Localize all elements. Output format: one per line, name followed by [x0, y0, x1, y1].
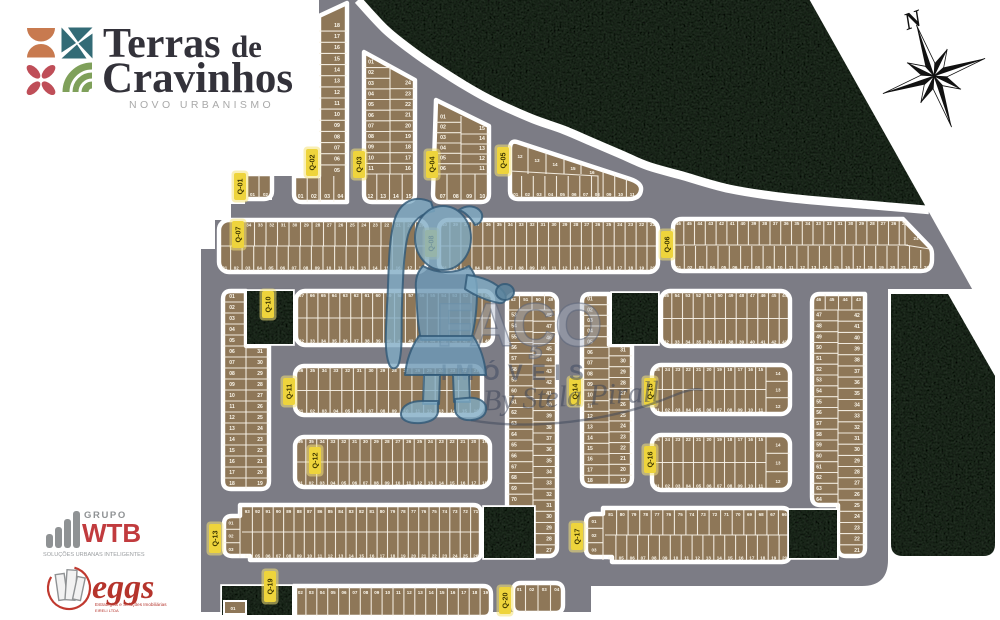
svg-text:28: 28 — [385, 439, 391, 444]
svg-text:33: 33 — [333, 368, 339, 373]
svg-text:61: 61 — [365, 293, 371, 298]
svg-text:66: 66 — [310, 293, 316, 298]
svg-text:26: 26 — [854, 492, 860, 498]
svg-text:76: 76 — [421, 509, 427, 514]
svg-text:64: 64 — [511, 432, 517, 438]
svg-text:01: 01 — [655, 484, 661, 489]
svg-text:10: 10 — [395, 481, 401, 486]
svg-text:36: 36 — [854, 380, 860, 386]
svg-text:Q-17: Q-17 — [573, 529, 582, 545]
svg-text:08: 08 — [334, 134, 340, 140]
svg-text:78: 78 — [643, 512, 649, 517]
svg-text:07: 07 — [352, 590, 358, 595]
svg-text:12: 12 — [517, 154, 523, 159]
svg-text:24: 24 — [617, 222, 623, 227]
svg-text:04: 04 — [245, 554, 251, 559]
svg-text:74: 74 — [689, 512, 695, 517]
svg-text:15: 15 — [334, 56, 340, 62]
svg-text:22: 22 — [686, 437, 692, 442]
svg-text:25: 25 — [655, 367, 661, 372]
svg-text:29: 29 — [304, 223, 310, 228]
svg-text:26: 26 — [257, 404, 263, 410]
svg-text:02: 02 — [525, 192, 531, 197]
svg-text:29: 29 — [620, 369, 626, 375]
svg-text:20: 20 — [650, 266, 656, 271]
svg-text:87: 87 — [307, 509, 313, 514]
svg-text:17: 17 — [229, 470, 235, 476]
svg-text:21: 21 — [405, 113, 411, 119]
svg-text:11: 11 — [406, 481, 411, 486]
svg-text:54: 54 — [675, 293, 681, 298]
svg-text:20: 20 — [257, 470, 263, 476]
svg-text:39: 39 — [376, 339, 382, 344]
svg-text:11: 11 — [334, 101, 340, 107]
svg-text:14: 14 — [775, 371, 781, 376]
svg-text:38: 38 — [728, 340, 734, 345]
svg-text:15: 15 — [570, 166, 576, 171]
svg-text:80: 80 — [380, 509, 386, 514]
svg-text:19: 19 — [257, 481, 263, 487]
svg-text:06: 06 — [440, 166, 446, 172]
svg-text:Q-10: Q-10 — [264, 297, 273, 313]
svg-text:Q-05: Q-05 — [499, 153, 508, 169]
svg-text:07: 07 — [583, 192, 589, 197]
svg-text:39: 39 — [739, 340, 745, 345]
svg-text:04: 04 — [333, 409, 339, 414]
svg-text:70: 70 — [511, 497, 517, 503]
svg-text:64: 64 — [816, 497, 822, 503]
svg-text:53: 53 — [685, 293, 691, 298]
svg-text:34: 34 — [685, 340, 691, 345]
svg-text:60: 60 — [376, 293, 382, 298]
svg-text:49: 49 — [816, 334, 822, 340]
svg-text:13: 13 — [338, 554, 344, 559]
svg-text:29: 29 — [257, 371, 263, 377]
svg-text:01: 01 — [298, 194, 304, 200]
svg-text:09: 09 — [385, 481, 391, 486]
svg-text:39: 39 — [751, 221, 757, 226]
svg-text:45: 45 — [829, 297, 835, 302]
svg-text:22: 22 — [384, 223, 390, 228]
svg-text:13: 13 — [573, 266, 579, 271]
svg-text:09: 09 — [662, 556, 668, 561]
svg-text:07: 07 — [368, 123, 374, 129]
svg-text:15: 15 — [758, 437, 764, 442]
svg-text:22: 22 — [432, 554, 438, 559]
svg-text:06: 06 — [706, 408, 712, 413]
svg-text:24: 24 — [257, 426, 263, 432]
svg-text:02: 02 — [529, 587, 535, 592]
svg-text:14: 14 — [393, 194, 399, 200]
svg-text:12: 12 — [800, 265, 806, 270]
svg-text:07: 07 — [717, 484, 723, 489]
svg-text:01: 01 — [250, 192, 256, 197]
svg-text:08: 08 — [755, 265, 761, 270]
svg-text:44: 44 — [782, 293, 788, 298]
svg-text:26: 26 — [473, 554, 479, 559]
svg-text:78: 78 — [401, 509, 407, 514]
svg-text:Q-01: Q-01 — [236, 179, 245, 195]
svg-text:12: 12 — [368, 194, 374, 200]
svg-text:02: 02 — [310, 409, 316, 414]
svg-text:36: 36 — [707, 340, 713, 345]
svg-text:46: 46 — [816, 297, 822, 302]
svg-text:59: 59 — [816, 443, 822, 449]
svg-text:58: 58 — [816, 432, 822, 438]
svg-text:04: 04 — [608, 556, 614, 561]
svg-text:49: 49 — [728, 293, 734, 298]
svg-text:11: 11 — [368, 166, 374, 172]
svg-text:38: 38 — [546, 425, 552, 431]
svg-text:03: 03 — [229, 316, 235, 322]
svg-text:37: 37 — [354, 339, 360, 344]
svg-text:29: 29 — [859, 221, 865, 226]
svg-text:08: 08 — [363, 590, 369, 595]
svg-text:13: 13 — [811, 265, 817, 270]
svg-text:67: 67 — [299, 293, 305, 298]
svg-text:27: 27 — [584, 222, 590, 227]
svg-text:10: 10 — [540, 266, 546, 271]
svg-text:64: 64 — [332, 293, 338, 298]
svg-text:24: 24 — [405, 81, 411, 87]
svg-text:56: 56 — [816, 410, 822, 416]
svg-text:17: 17 — [461, 590, 467, 595]
svg-text:44: 44 — [697, 221, 703, 226]
svg-text:33: 33 — [675, 340, 681, 345]
svg-text:25: 25 — [655, 437, 661, 442]
svg-text:21: 21 — [696, 367, 702, 372]
svg-text:07: 07 — [368, 409, 374, 414]
svg-text:02: 02 — [311, 194, 317, 200]
svg-text:32: 32 — [664, 340, 670, 345]
svg-text:12: 12 — [775, 404, 781, 409]
svg-text:39: 39 — [546, 414, 552, 420]
svg-text:27: 27 — [257, 393, 263, 399]
svg-text:41: 41 — [854, 324, 860, 330]
svg-text:02: 02 — [665, 484, 671, 489]
svg-text:04: 04 — [440, 145, 446, 151]
svg-text:33: 33 — [546, 481, 552, 487]
svg-text:19: 19 — [639, 266, 645, 271]
svg-text:15: 15 — [728, 556, 734, 561]
svg-text:34: 34 — [854, 402, 860, 408]
svg-text:32: 32 — [299, 339, 305, 344]
svg-text:19: 19 — [401, 554, 407, 559]
svg-text:45: 45 — [771, 293, 777, 298]
svg-text:76: 76 — [666, 512, 672, 517]
svg-text:01: 01 — [298, 409, 304, 414]
svg-text:08: 08 — [727, 484, 733, 489]
svg-text:35: 35 — [332, 339, 338, 344]
svg-text:20: 20 — [471, 439, 477, 444]
svg-text:23: 23 — [439, 439, 445, 444]
svg-text:20: 20 — [890, 265, 896, 270]
svg-text:35: 35 — [310, 368, 316, 373]
svg-text:40: 40 — [750, 340, 756, 345]
svg-text:10: 10 — [334, 112, 340, 118]
svg-text:NOVO URBANISMO: NOVO URBANISMO — [129, 99, 274, 111]
svg-text:16: 16 — [738, 556, 744, 561]
svg-text:24: 24 — [665, 367, 671, 372]
svg-text:16: 16 — [369, 554, 375, 559]
svg-text:05: 05 — [368, 102, 374, 108]
svg-text:42: 42 — [719, 221, 725, 226]
svg-text:10: 10 — [326, 266, 332, 271]
svg-text:04: 04 — [710, 265, 716, 270]
svg-text:10: 10 — [368, 155, 374, 161]
svg-text:17: 17 — [471, 481, 477, 486]
svg-text:16: 16 — [405, 166, 411, 172]
svg-text:68: 68 — [759, 512, 765, 517]
svg-text:19: 19 — [717, 367, 723, 372]
svg-text:06: 06 — [334, 157, 340, 163]
svg-text:32: 32 — [854, 425, 860, 431]
svg-text:06: 06 — [706, 484, 712, 489]
svg-text:Q-12: Q-12 — [311, 453, 320, 469]
svg-text:52: 52 — [696, 293, 702, 298]
svg-text:36: 36 — [546, 447, 552, 453]
svg-text:26: 26 — [595, 222, 601, 227]
svg-text:24: 24 — [452, 554, 458, 559]
svg-text:07: 07 — [508, 266, 514, 271]
svg-text:03: 03 — [699, 265, 705, 270]
svg-text:01: 01 — [440, 114, 446, 120]
svg-text:08: 08 — [286, 554, 292, 559]
svg-text:09: 09 — [466, 194, 472, 200]
svg-text:14: 14 — [334, 68, 340, 74]
svg-text:39: 39 — [854, 347, 860, 353]
svg-text:07: 07 — [717, 408, 723, 413]
svg-text:67: 67 — [770, 512, 776, 517]
svg-text:04: 04 — [368, 92, 374, 98]
svg-text:WTB: WTB — [82, 518, 141, 548]
svg-text:01: 01 — [229, 294, 235, 300]
svg-text:77: 77 — [411, 509, 417, 514]
svg-text:31: 31 — [257, 349, 263, 355]
svg-text:08: 08 — [453, 194, 459, 200]
svg-text:03: 03 — [537, 192, 543, 197]
svg-text:10: 10 — [385, 590, 391, 595]
svg-text:50: 50 — [718, 293, 724, 298]
svg-text:13: 13 — [361, 266, 367, 271]
svg-text:70: 70 — [735, 512, 741, 517]
svg-text:09: 09 — [530, 266, 536, 271]
svg-text:10: 10 — [618, 192, 624, 197]
svg-text:Q-04: Q-04 — [428, 157, 437, 173]
svg-text:24: 24 — [361, 223, 367, 228]
svg-text:35: 35 — [497, 222, 503, 227]
svg-text:05: 05 — [696, 408, 702, 413]
svg-text:23: 23 — [373, 223, 379, 228]
svg-text:25: 25 — [606, 222, 612, 227]
svg-text:15: 15 — [758, 367, 764, 372]
svg-text:EIRELI LTDA: EIRELI LTDA — [95, 608, 119, 613]
svg-text:63: 63 — [343, 293, 349, 298]
svg-text:57: 57 — [408, 293, 414, 298]
svg-text:71: 71 — [473, 509, 479, 514]
svg-text:18: 18 — [760, 556, 766, 561]
svg-text:10: 10 — [480, 194, 486, 200]
svg-text:11: 11 — [396, 590, 401, 595]
svg-text:16: 16 — [845, 265, 851, 270]
svg-text:09: 09 — [392, 409, 398, 414]
svg-text:43: 43 — [708, 221, 714, 226]
svg-text:03: 03 — [440, 135, 446, 141]
svg-text:74: 74 — [442, 509, 448, 514]
svg-text:75: 75 — [678, 512, 684, 517]
svg-text:14: 14 — [439, 481, 445, 486]
svg-text:23: 23 — [442, 554, 448, 559]
svg-text:Q-07: Q-07 — [234, 227, 243, 243]
svg-text:89: 89 — [286, 509, 292, 514]
svg-text:14: 14 — [552, 162, 558, 167]
svg-text:03: 03 — [675, 484, 681, 489]
svg-text:Q-20: Q-20 — [501, 593, 510, 609]
svg-text:17: 17 — [405, 155, 411, 161]
svg-text:08: 08 — [229, 371, 235, 377]
svg-text:38: 38 — [854, 358, 860, 364]
svg-text:13: 13 — [418, 590, 424, 595]
svg-text:07: 07 — [744, 265, 750, 270]
svg-text:12: 12 — [562, 266, 568, 271]
svg-text:Q-06: Q-06 — [663, 237, 672, 253]
svg-text:36: 36 — [784, 221, 790, 226]
svg-text:11: 11 — [229, 404, 235, 410]
svg-text:04: 04 — [338, 194, 344, 200]
svg-text:15: 15 — [595, 266, 601, 271]
svg-text:10: 10 — [229, 393, 235, 399]
svg-text:28: 28 — [257, 382, 263, 388]
svg-text:13: 13 — [229, 426, 235, 432]
svg-text:60: 60 — [816, 454, 822, 460]
svg-text:10: 10 — [777, 265, 783, 270]
svg-text:18: 18 — [229, 481, 235, 487]
svg-text:17: 17 — [334, 34, 340, 40]
svg-text:91: 91 — [265, 509, 271, 514]
svg-text:13: 13 — [775, 388, 781, 393]
svg-text:19: 19 — [717, 437, 723, 442]
svg-text:80: 80 — [620, 512, 626, 517]
svg-text:05: 05 — [341, 481, 347, 486]
svg-text:42: 42 — [408, 339, 414, 344]
svg-text:15: 15 — [479, 126, 485, 132]
svg-text:15: 15 — [450, 481, 456, 486]
svg-text:09: 09 — [315, 266, 321, 271]
svg-text:05: 05 — [345, 409, 351, 414]
svg-text:SOLUÇÕES URBANAS INTELIGENTES: SOLUÇÕES URBANAS INTELIGENTES — [43, 551, 145, 558]
svg-text:38: 38 — [762, 221, 768, 226]
svg-text:41: 41 — [730, 221, 736, 226]
svg-text:16: 16 — [589, 170, 595, 175]
svg-text:33: 33 — [854, 414, 860, 420]
svg-text:06: 06 — [732, 265, 738, 270]
svg-text:02: 02 — [440, 125, 446, 131]
svg-text:01: 01 — [230, 606, 236, 611]
svg-text:11: 11 — [758, 484, 763, 489]
svg-text:27: 27 — [881, 221, 887, 226]
svg-text:01: 01 — [591, 519, 597, 524]
svg-text:17: 17 — [587, 467, 593, 473]
svg-text:28: 28 — [854, 470, 860, 476]
svg-text:19: 19 — [405, 134, 411, 140]
svg-text:03: 03 — [591, 548, 597, 553]
svg-text:30: 30 — [854, 447, 860, 453]
svg-text:37: 37 — [773, 221, 779, 226]
svg-text:93: 93 — [245, 509, 251, 514]
svg-text:22: 22 — [913, 265, 919, 270]
svg-text:35: 35 — [309, 439, 315, 444]
svg-text:31: 31 — [281, 223, 287, 228]
svg-text:05: 05 — [721, 265, 727, 270]
svg-text:48: 48 — [816, 324, 822, 330]
svg-text:19: 19 — [482, 439, 488, 444]
svg-text:33: 33 — [816, 221, 822, 226]
svg-text:09: 09 — [374, 590, 380, 595]
svg-text:22: 22 — [450, 439, 456, 444]
svg-text:18: 18 — [482, 481, 488, 486]
svg-text:66: 66 — [511, 454, 517, 460]
svg-text:43: 43 — [856, 297, 862, 302]
svg-text:32: 32 — [341, 439, 347, 444]
svg-text:15: 15 — [439, 590, 445, 595]
svg-text:09: 09 — [368, 145, 374, 151]
svg-text:10: 10 — [748, 408, 754, 413]
svg-text:22: 22 — [854, 537, 860, 543]
svg-text:02: 02 — [309, 481, 315, 486]
svg-text:34: 34 — [805, 221, 811, 226]
svg-text:03: 03 — [368, 81, 374, 87]
svg-text:84: 84 — [338, 509, 344, 514]
svg-text:34: 34 — [322, 368, 328, 373]
svg-text:03: 03 — [309, 590, 315, 595]
svg-text:63: 63 — [816, 486, 822, 492]
svg-text:15: 15 — [587, 446, 593, 452]
svg-text:31: 31 — [352, 439, 358, 444]
svg-text:14: 14 — [429, 590, 435, 595]
svg-text:02: 02 — [234, 266, 240, 271]
svg-text:11: 11 — [338, 266, 343, 271]
svg-text:01: 01 — [222, 266, 228, 271]
svg-text:30: 30 — [546, 514, 552, 520]
svg-text:65: 65 — [321, 293, 327, 298]
svg-text:72: 72 — [712, 512, 718, 517]
svg-text:40: 40 — [854, 335, 860, 341]
svg-text:17: 17 — [738, 437, 744, 442]
svg-text:04: 04 — [229, 327, 235, 333]
svg-text:16: 16 — [229, 459, 235, 465]
svg-text:02: 02 — [687, 265, 693, 270]
svg-text:34: 34 — [508, 222, 514, 227]
svg-text:06: 06 — [229, 349, 235, 355]
svg-text:24: 24 — [854, 514, 860, 520]
svg-text:04: 04 — [686, 484, 692, 489]
svg-text:51: 51 — [816, 356, 822, 362]
svg-text:14: 14 — [479, 136, 485, 142]
svg-text:02: 02 — [228, 534, 234, 539]
svg-text:11: 11 — [684, 556, 689, 561]
svg-text:46: 46 — [761, 293, 767, 298]
svg-text:31: 31 — [357, 368, 363, 373]
svg-text:61: 61 — [816, 464, 822, 470]
svg-text:eggs: eggs — [92, 569, 154, 606]
svg-text:26: 26 — [891, 221, 897, 226]
svg-text:25: 25 — [350, 223, 356, 228]
svg-text:Q-13: Q-13 — [211, 531, 220, 547]
svg-text:11: 11 — [318, 554, 323, 559]
svg-text:11: 11 — [630, 192, 635, 197]
svg-text:08: 08 — [595, 192, 601, 197]
svg-text:18: 18 — [727, 367, 733, 372]
